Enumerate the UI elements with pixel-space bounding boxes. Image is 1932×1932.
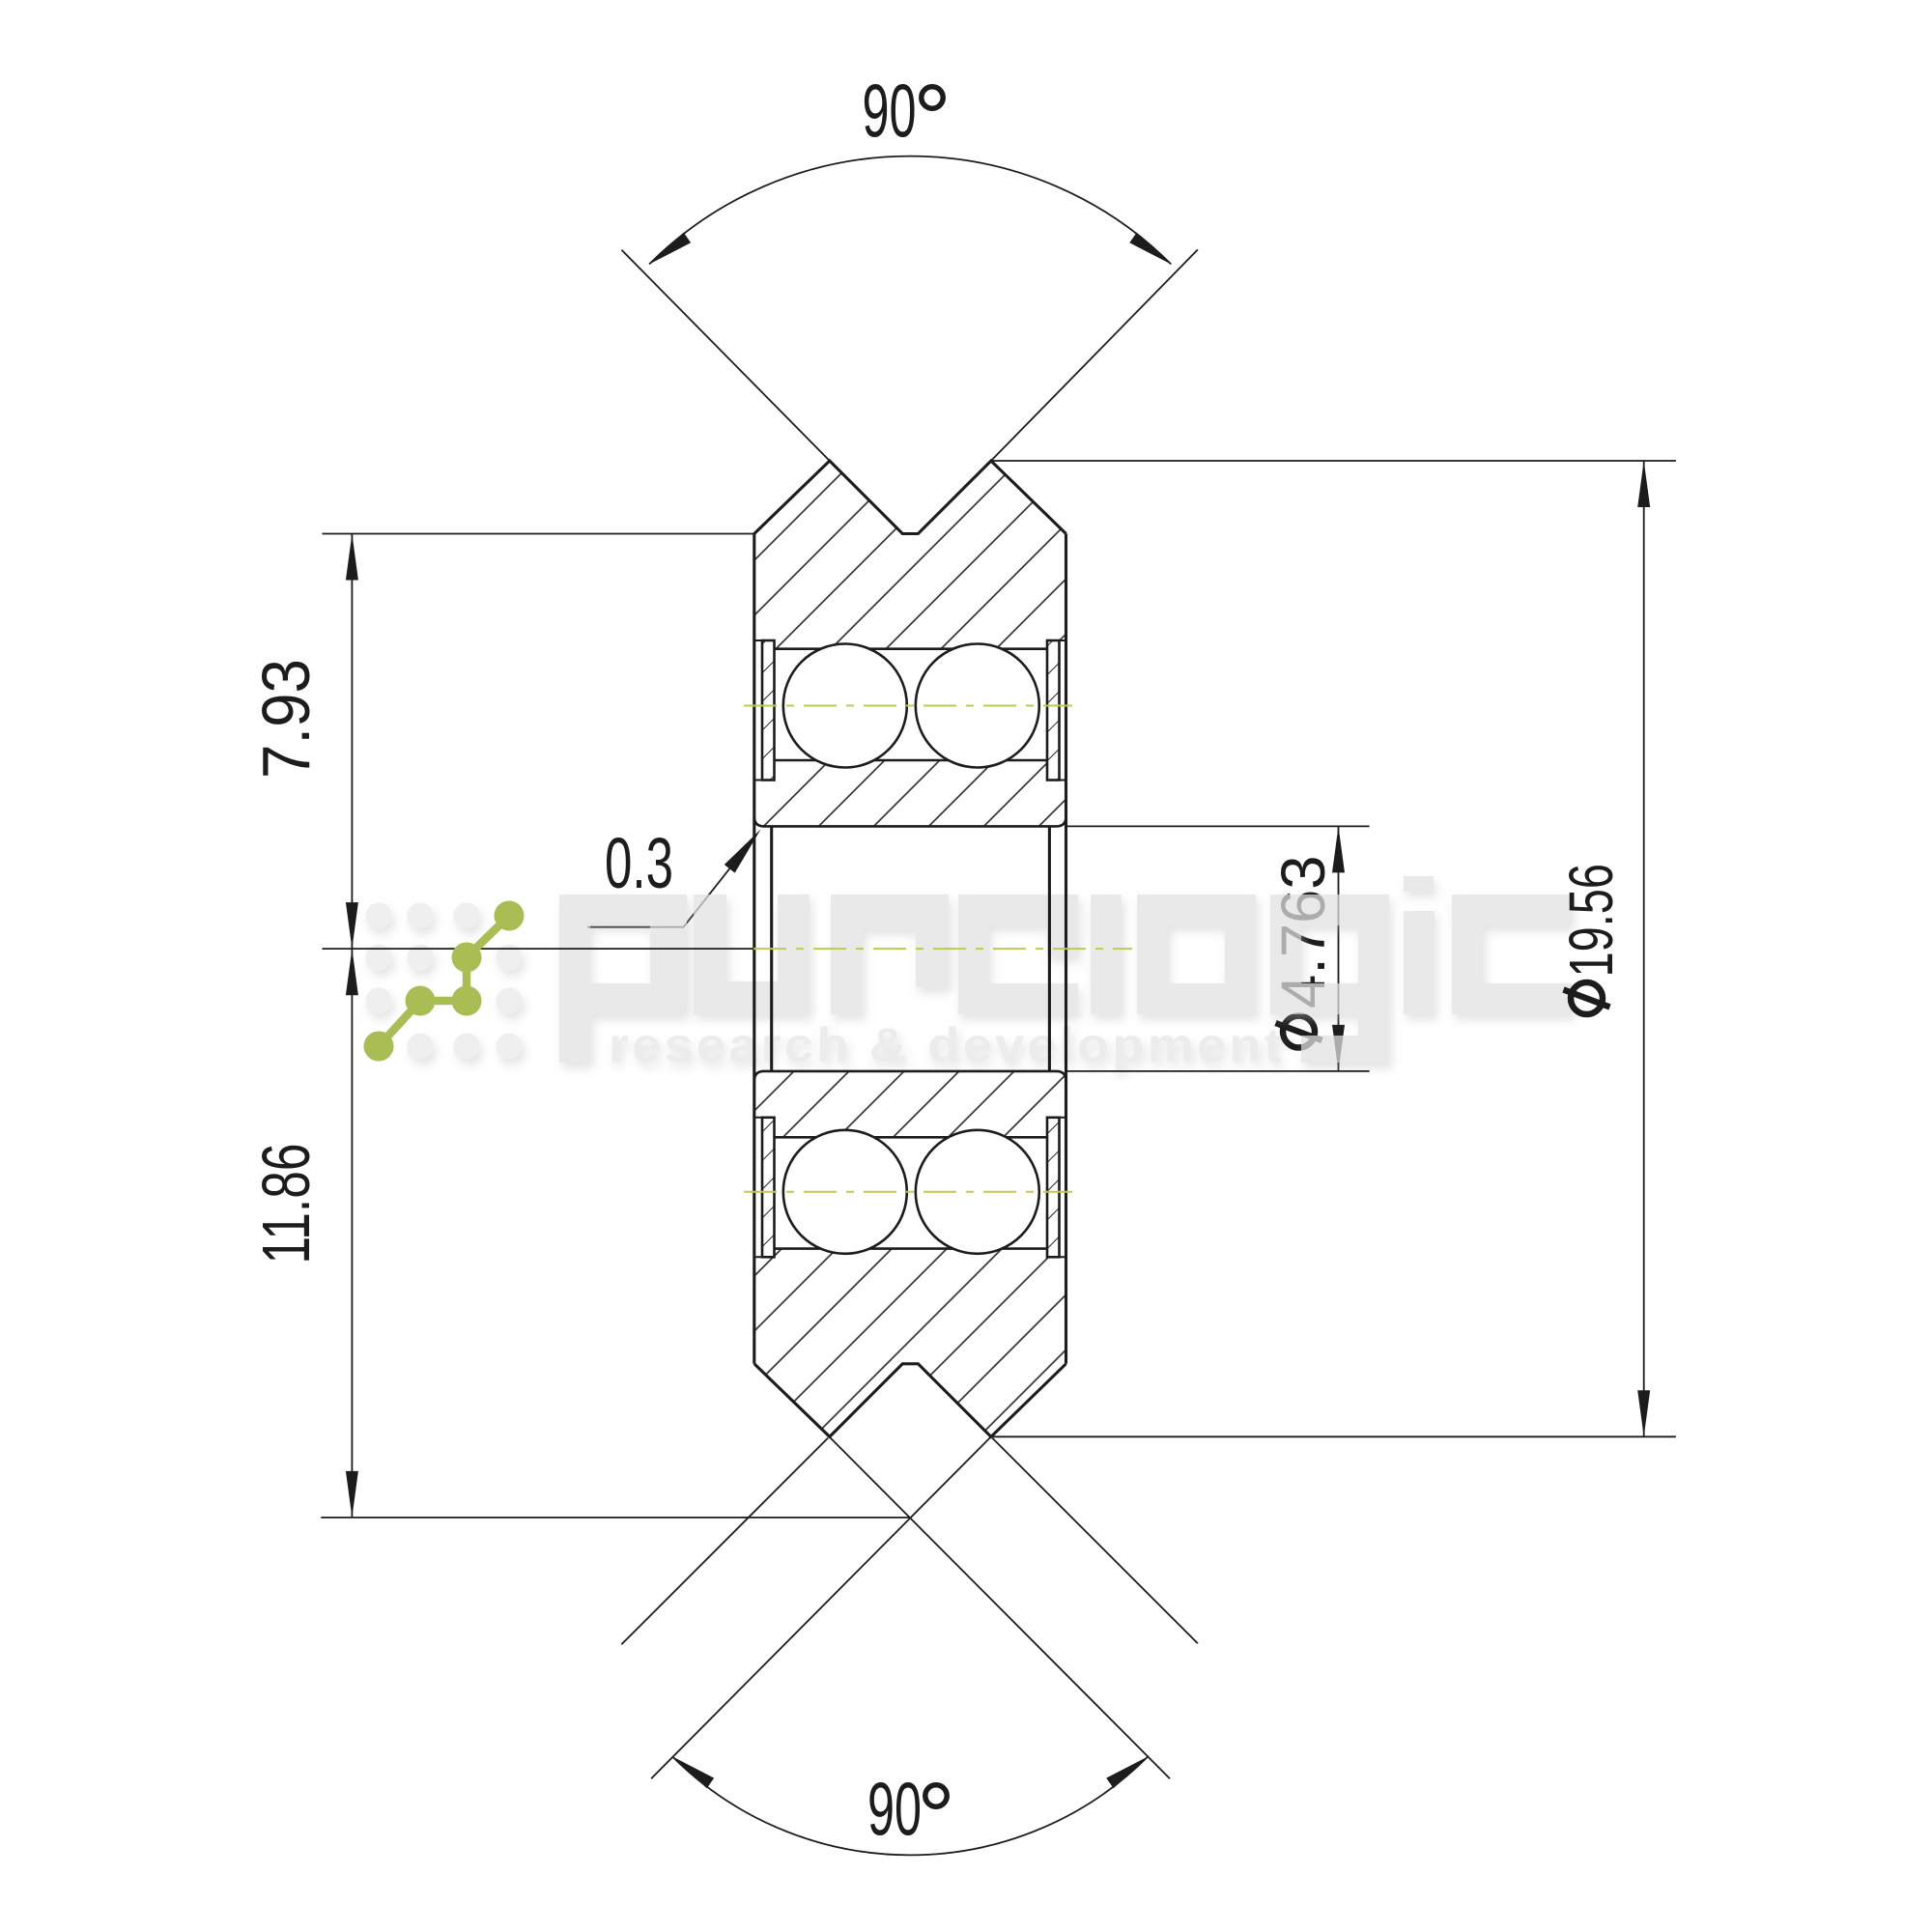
svg-text:11.86: 11.86 bbox=[248, 1144, 324, 1264]
svg-text:7.93: 7.93 bbox=[248, 659, 324, 779]
svg-text:90: 90 bbox=[863, 68, 917, 153]
svg-text:19.56: 19.56 bbox=[1556, 864, 1626, 978]
svg-text:0.3: 0.3 bbox=[605, 823, 673, 903]
svg-text:research & development: research & development bbox=[609, 1018, 1285, 1072]
svg-text:90: 90 bbox=[867, 1766, 922, 1851]
